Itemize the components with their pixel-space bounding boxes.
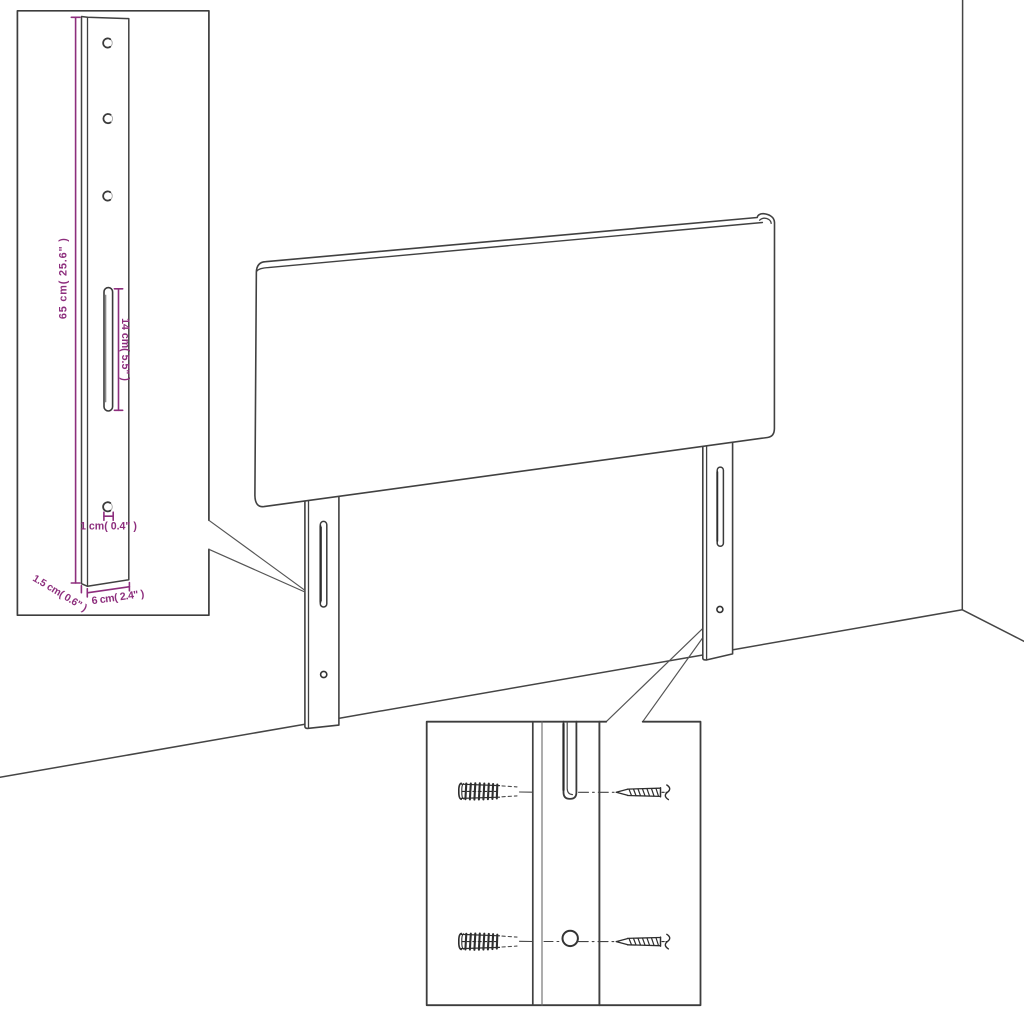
svg-text:1 cm( 0.4" ): 1 cm( 0.4" ) <box>80 520 137 532</box>
svg-text:1.5 cm( 0.6" ): 1.5 cm( 0.6" ) <box>30 573 88 614</box>
svg-text:65 cm( 25.6" ): 65 cm( 25.6" ) <box>57 237 69 319</box>
svg-text:14 cm( 5.5" ): 14 cm( 5.5" ) <box>119 318 131 381</box>
